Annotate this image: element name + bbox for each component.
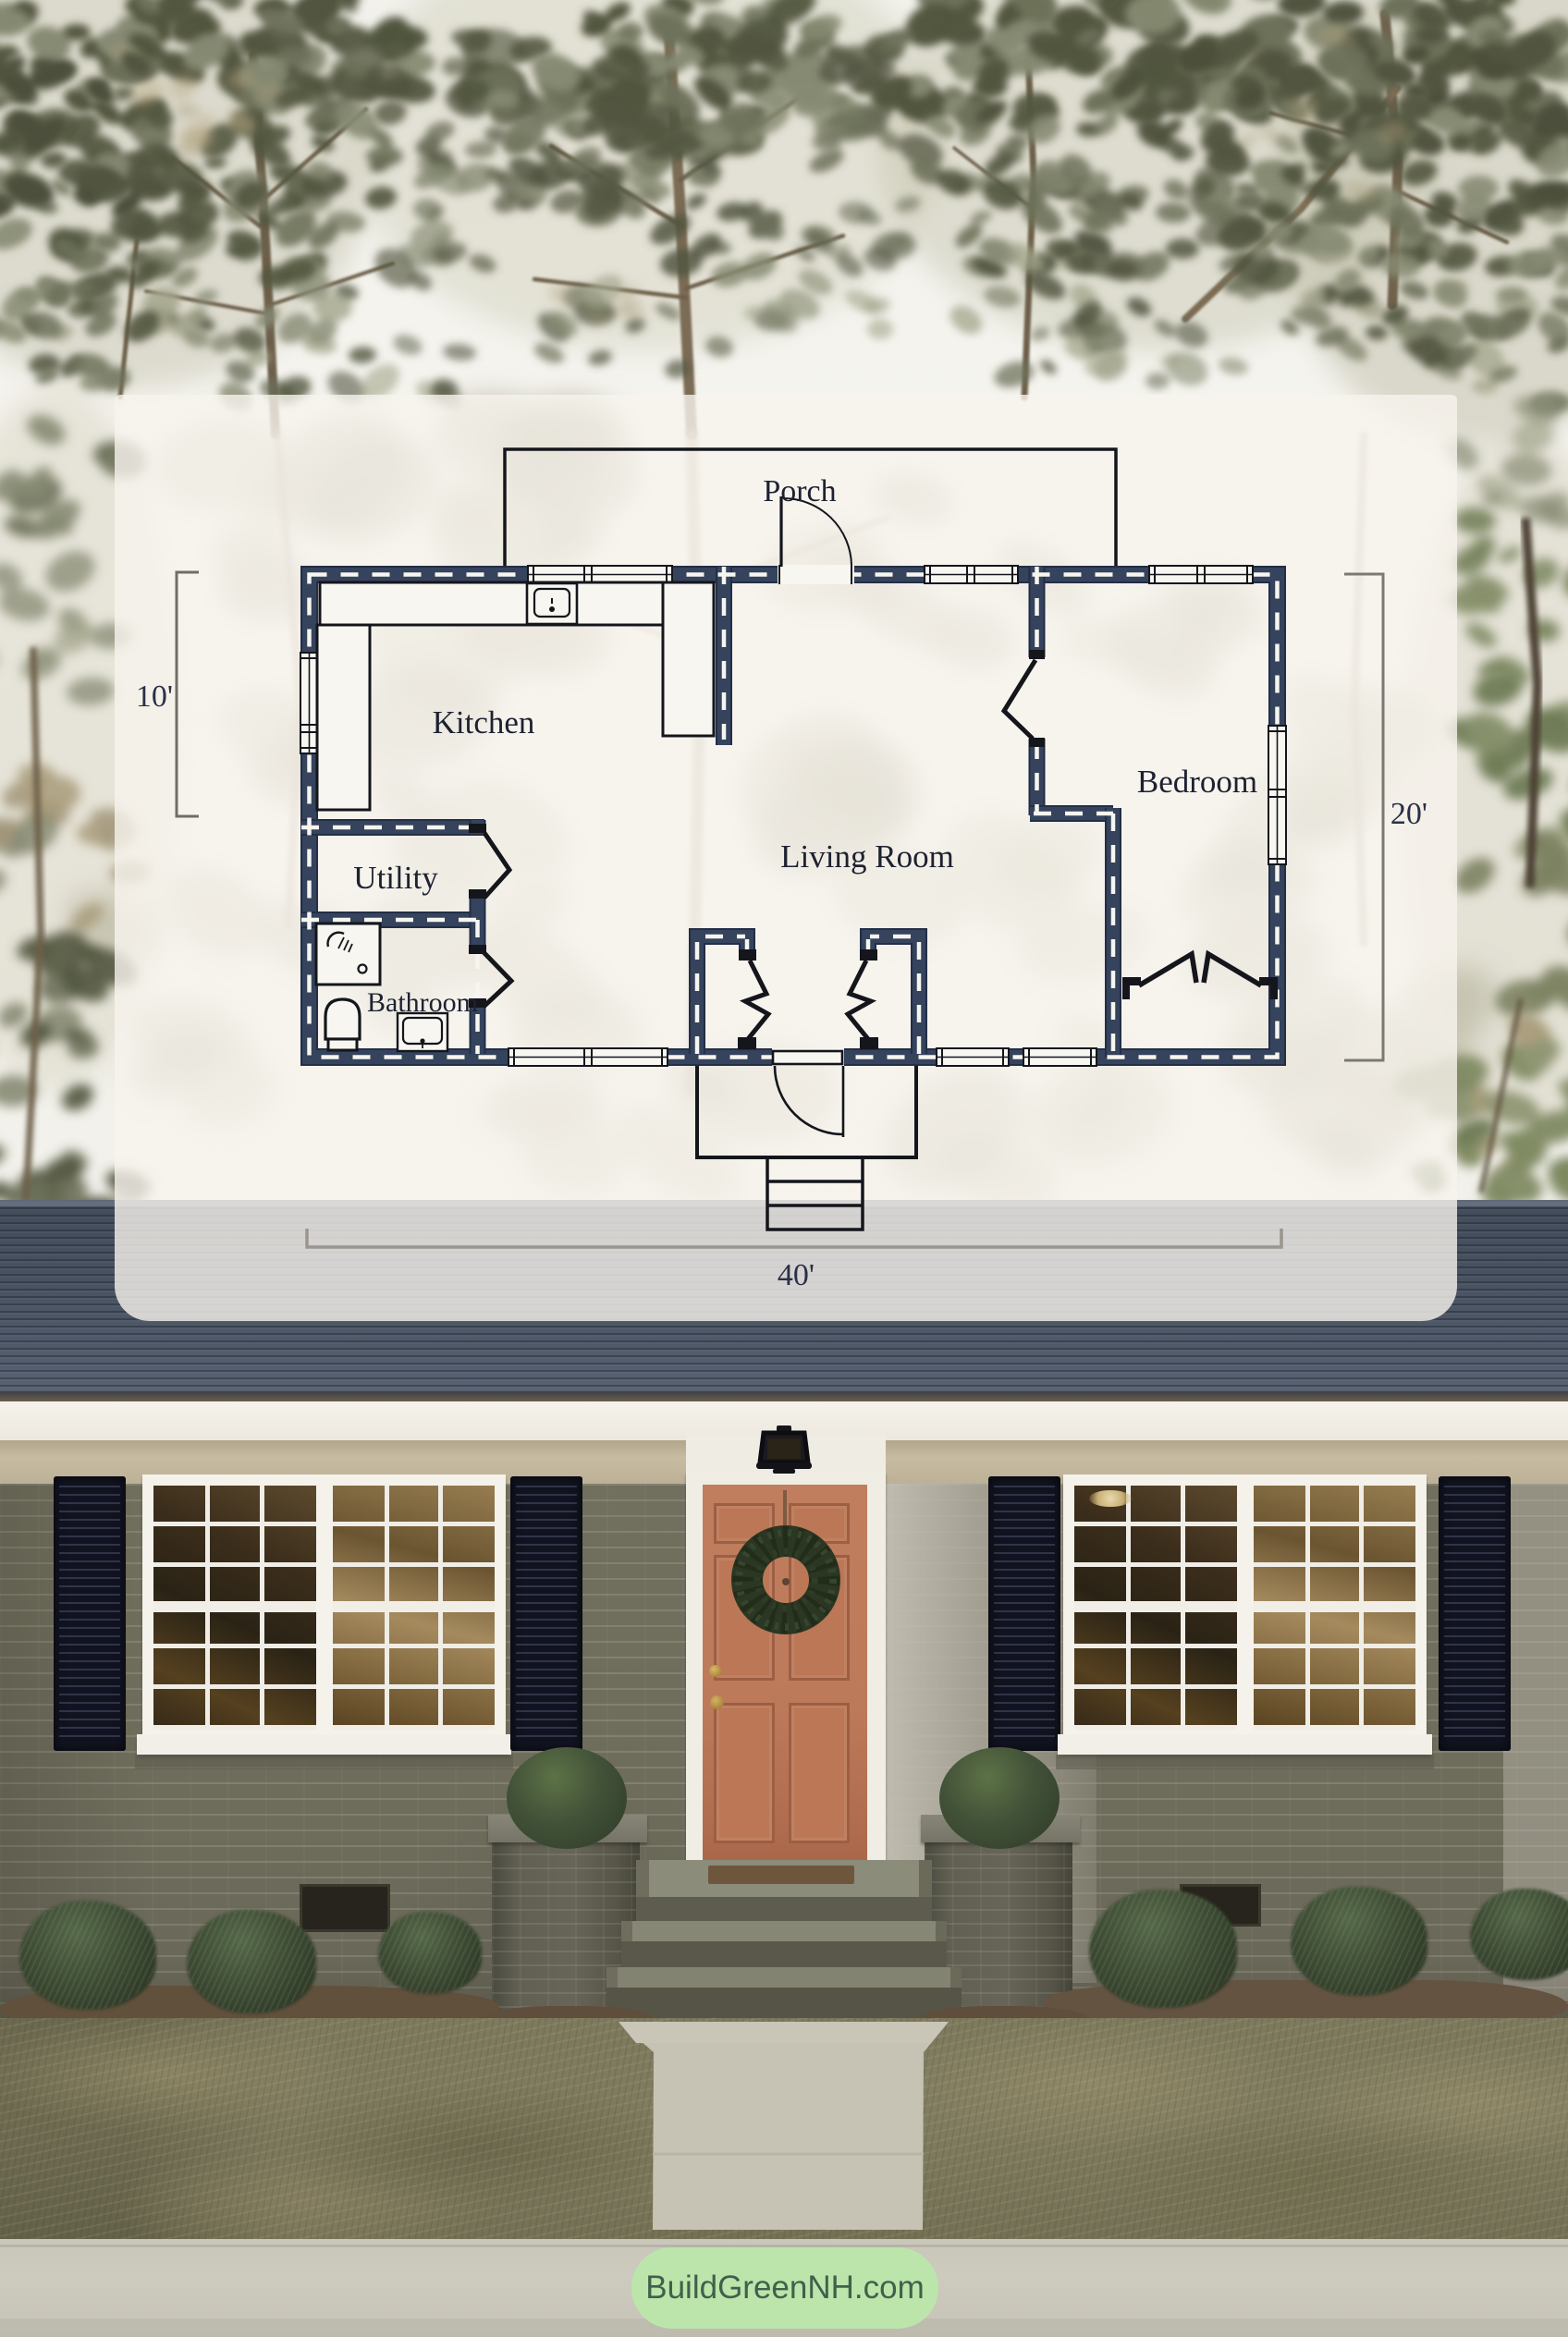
svg-text:Bedroom: Bedroom — [1137, 764, 1257, 800]
svg-text:Porch: Porch — [763, 474, 836, 508]
svg-text:40': 40' — [778, 1258, 815, 1292]
svg-text:Living Room: Living Room — [780, 838, 954, 875]
svg-text:20': 20' — [1390, 797, 1427, 831]
svg-text:10': 10' — [136, 679, 173, 714]
svg-text:Kitchen: Kitchen — [433, 704, 535, 740]
svg-text:Utility: Utility — [353, 860, 438, 896]
svg-text:Bathroom: Bathroom — [367, 987, 478, 1018]
